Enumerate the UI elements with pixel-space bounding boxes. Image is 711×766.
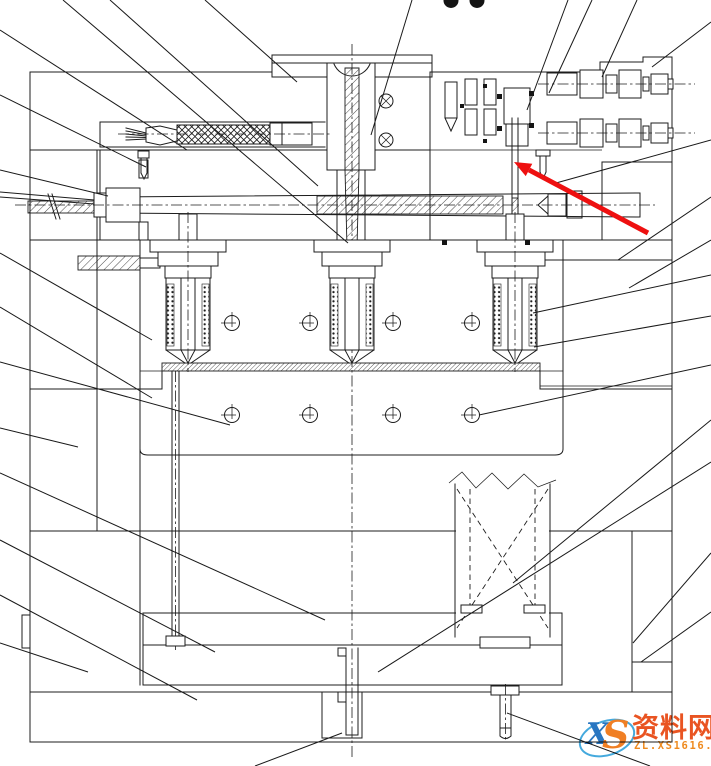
wedge-bar: [78, 256, 140, 270]
ejector-pin-head: [166, 636, 185, 646]
cable-plug: [146, 126, 177, 145]
pillar-flange: [480, 637, 530, 648]
leader-line: [0, 30, 187, 150]
screenshot-root: X S 资料网 ZL.XS1616.COM: [0, 0, 711, 766]
leader-line: [533, 275, 711, 313]
left-pry-slot: [22, 615, 30, 648]
top-edge-dots: [444, 0, 485, 8]
valve-pin-bushing: [504, 88, 530, 124]
heater-cable: [126, 123, 312, 179]
red-annotation-arrow: [514, 162, 648, 233]
leader-line: [0, 473, 325, 620]
leader-line: [652, 22, 711, 67]
braided-cable: [177, 125, 270, 144]
leader-line: [534, 316, 711, 347]
cavity-surface-hatch: [162, 363, 540, 371]
leader-line: [618, 197, 711, 260]
leader-line: [0, 95, 146, 167]
watermark-domain: ZL.XS1616.COM: [634, 740, 711, 752]
leader-line: [0, 362, 230, 425]
mold-section-drawing: [0, 0, 711, 766]
leader-line: [205, 0, 297, 82]
leader-line: [479, 365, 711, 415]
nozzle: [477, 212, 553, 372]
cartridge-heater: [445, 82, 457, 118]
center-screw-head: [536, 150, 550, 156]
cylinder-row: [538, 70, 695, 98]
nozzle: [150, 212, 226, 372]
cylinder-row: [538, 119, 695, 147]
leader-line: [629, 240, 711, 288]
leader-line: [602, 0, 637, 77]
valve-cylinders: [538, 70, 695, 147]
cavity-insert: [78, 256, 563, 455]
leader-line: [0, 307, 152, 398]
leader-line: [255, 733, 342, 766]
leader-line: [641, 612, 711, 662]
watermark-logo-s: S: [602, 712, 629, 757]
leader-line: [0, 170, 108, 196]
ejector-system: [143, 371, 562, 742]
watermark-logo-icon: X S: [578, 718, 634, 756]
core-insert-bottom: [140, 449, 563, 455]
pillar-bolt-washer: [491, 686, 519, 695]
site-watermark: X S 资料网 ZL.XS1616.COM: [572, 704, 711, 762]
leader-line: [0, 428, 78, 447]
leader-line: [0, 643, 88, 672]
leader-line: [0, 540, 215, 652]
nozzle: [314, 240, 390, 363]
lead-wire-sheath: [28, 201, 94, 213]
